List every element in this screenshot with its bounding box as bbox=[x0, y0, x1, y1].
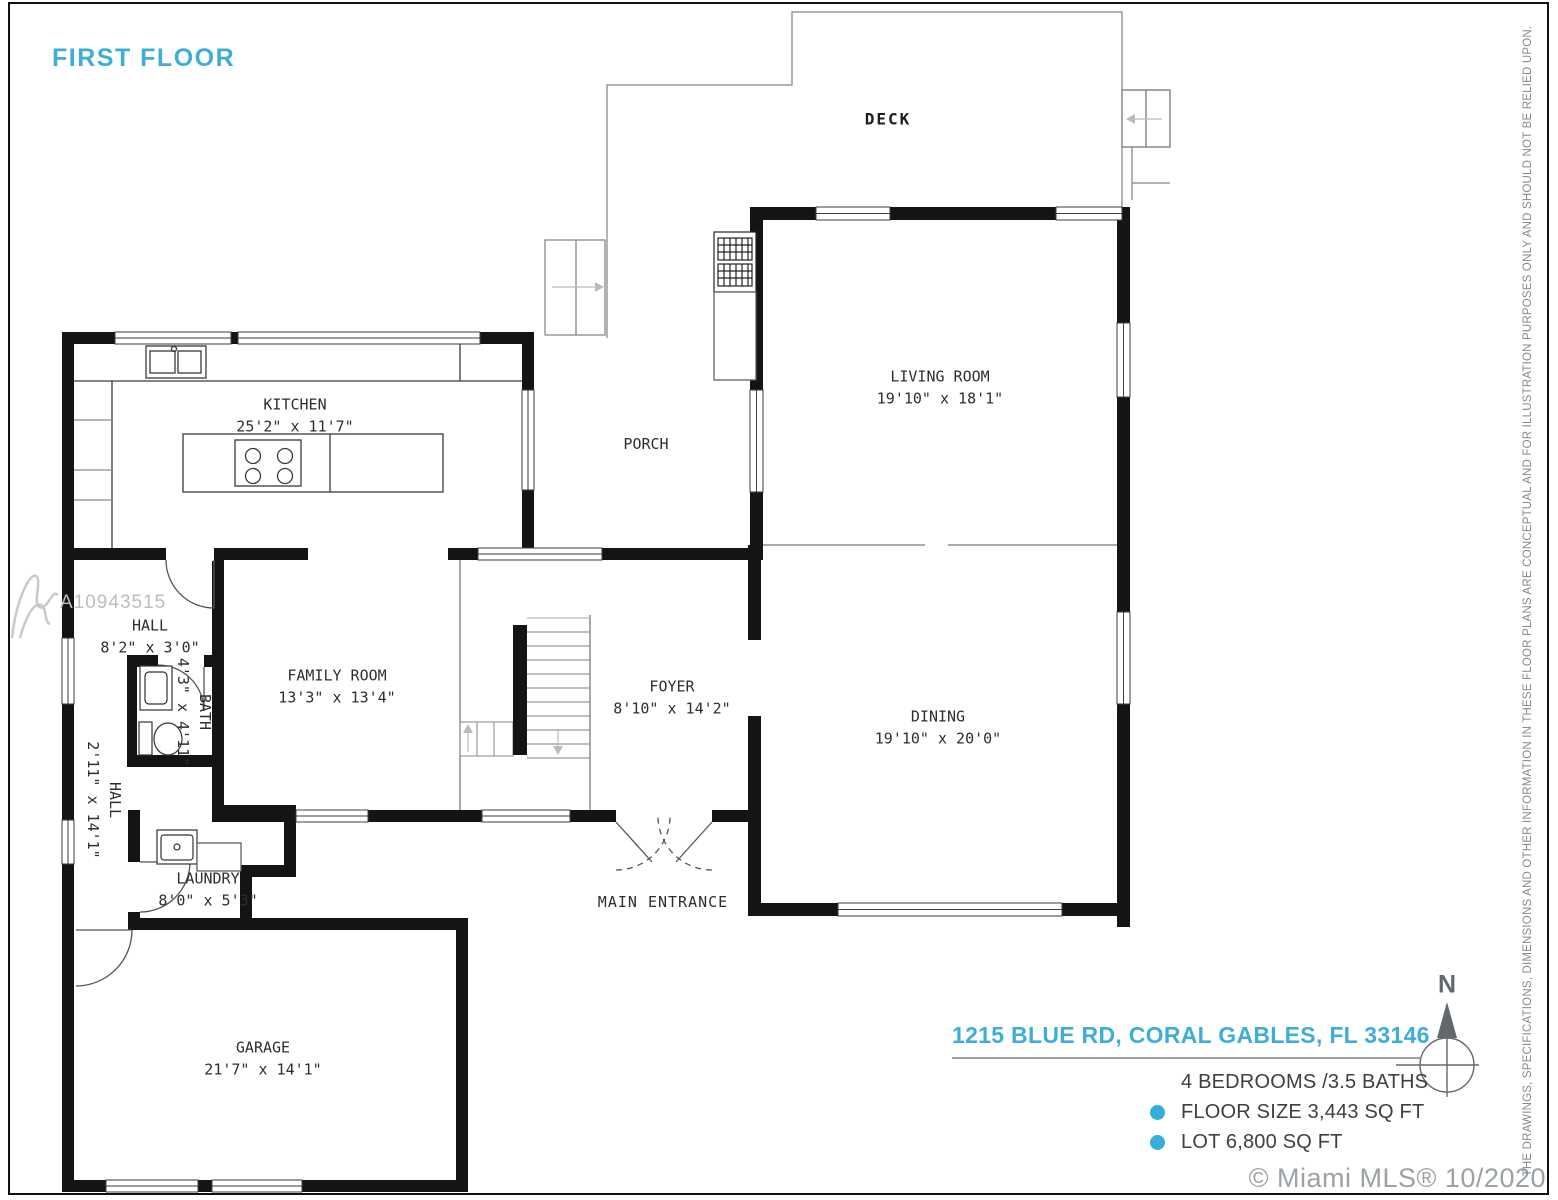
kitchen-fixtures bbox=[74, 344, 522, 548]
room-label-family: FAMILY ROOM 13'3" x 13'4" bbox=[278, 665, 395, 709]
bullet-icon bbox=[1150, 1135, 1165, 1150]
lot-size-row: LOT 6,800 SQ FT bbox=[1150, 1131, 1430, 1154]
room-name: HALL bbox=[100, 615, 199, 637]
room-dims: 13'3" x 13'4" bbox=[278, 687, 395, 709]
room-name: DECK bbox=[865, 107, 912, 130]
porch-steps bbox=[545, 240, 605, 335]
divider bbox=[952, 1057, 1420, 1059]
main-entrance-label: MAIN ENTRANCE bbox=[598, 892, 728, 914]
room-dims: 8'0" x 5'3" bbox=[158, 890, 257, 912]
deck-steps bbox=[1122, 90, 1170, 147]
beds-baths-row: 4 BEDROOMS /3.5 BATHS bbox=[1150, 1071, 1430, 1094]
lot-size-value: LOT 6,800 SQ FT bbox=[1181, 1131, 1343, 1154]
room-label-foyer: FOYER 8'10" x 14'2" bbox=[613, 676, 730, 720]
room-dims: 2'11" x 14'1" bbox=[81, 741, 103, 858]
room-name: DINING bbox=[875, 706, 1001, 728]
room-label-hall-side: HALL 2'11" x 14'1" bbox=[81, 741, 125, 858]
room-dims: 8'10" x 14'2" bbox=[613, 698, 730, 720]
room-label-garage: GARAGE 21'7" x 14'1" bbox=[204, 1037, 321, 1081]
property-address: 1215 BLUE RD, CORAL GABLES, FL 33146 bbox=[952, 1022, 1430, 1049]
interior-lines bbox=[460, 545, 1117, 810]
mls-watermark: A10943515 bbox=[60, 592, 166, 614]
deck-outline bbox=[607, 12, 1170, 338]
room-name: PORCH bbox=[623, 434, 668, 456]
watermark-logo-icon bbox=[12, 576, 58, 638]
room-dims: 4'3" x 4'11" bbox=[171, 658, 193, 766]
beds-baths-value: 4 BEDROOMS /3.5 BATHS bbox=[1181, 1071, 1428, 1094]
floor-size-value: FLOOR SIZE 3,443 SQ FT bbox=[1181, 1101, 1424, 1124]
page-title: FIRST FLOOR bbox=[52, 44, 235, 73]
room-dims: 19'10" x 20'0" bbox=[875, 728, 1001, 750]
room-label-laundry: LAUNDRY 8'0" x 5'3" bbox=[158, 868, 257, 912]
floor-plan-drawing bbox=[0, 0, 1558, 1200]
floor-plan-page: { "colors": { "accent": "#3FAED6", "bull… bbox=[0, 0, 1558, 1200]
copyright-text: © Miami MLS® 10/2020 bbox=[1249, 1163, 1546, 1194]
compass-north-label: N bbox=[1438, 971, 1456, 1000]
property-stats: 4 BEDROOMS /3.5 BATHS FLOOR SIZE 3,443 S… bbox=[1150, 1071, 1430, 1154]
room-dims: 21'7" x 14'1" bbox=[204, 1059, 321, 1081]
room-name: BATH bbox=[193, 658, 215, 766]
room-label-deck: DECK bbox=[865, 107, 912, 130]
room-name: LIVING ROOM bbox=[877, 366, 1003, 388]
laundry-fixtures bbox=[157, 830, 241, 871]
room-name: FOYER bbox=[613, 676, 730, 698]
room-label-porch: PORCH bbox=[623, 434, 668, 456]
disclaimer-text: THE DRAWINGS, SPECIFICATIONS, DIMENSIONS… bbox=[1521, 11, 1535, 1191]
staircase bbox=[460, 618, 590, 758]
room-name: HALL bbox=[103, 741, 125, 858]
bullet-icon bbox=[1150, 1105, 1165, 1120]
room-name: KITCHEN bbox=[236, 394, 353, 416]
room-name: MAIN ENTRANCE bbox=[598, 892, 728, 914]
floor-size-row: FLOOR SIZE 3,443 SQ FT bbox=[1150, 1101, 1430, 1124]
room-name: GARAGE bbox=[204, 1037, 321, 1059]
property-info: 1215 BLUE RD, CORAL GABLES, FL 33146 4 B… bbox=[952, 1022, 1430, 1154]
room-label-dining: DINING 19'10" x 20'0" bbox=[875, 706, 1001, 750]
room-label-living: LIVING ROOM 19'10" x 18'1" bbox=[877, 366, 1003, 410]
room-label-bath: BATH 4'3" x 4'11" bbox=[171, 658, 215, 766]
room-dims: 19'10" x 18'1" bbox=[877, 388, 1003, 410]
room-label-kitchen: KITCHEN 25'2" x 11'7" bbox=[236, 394, 353, 438]
room-name: LAUNDRY bbox=[158, 868, 257, 890]
room-label-hall-top: HALL 8'2" x 3'0" bbox=[100, 615, 199, 659]
room-name: FAMILY ROOM bbox=[278, 665, 395, 687]
room-dims: 25'2" x 11'7" bbox=[236, 416, 353, 438]
room-dims: 8'2" x 3'0" bbox=[100, 637, 199, 659]
bbq-grill bbox=[714, 232, 756, 380]
main-entrance-doors bbox=[616, 816, 712, 870]
